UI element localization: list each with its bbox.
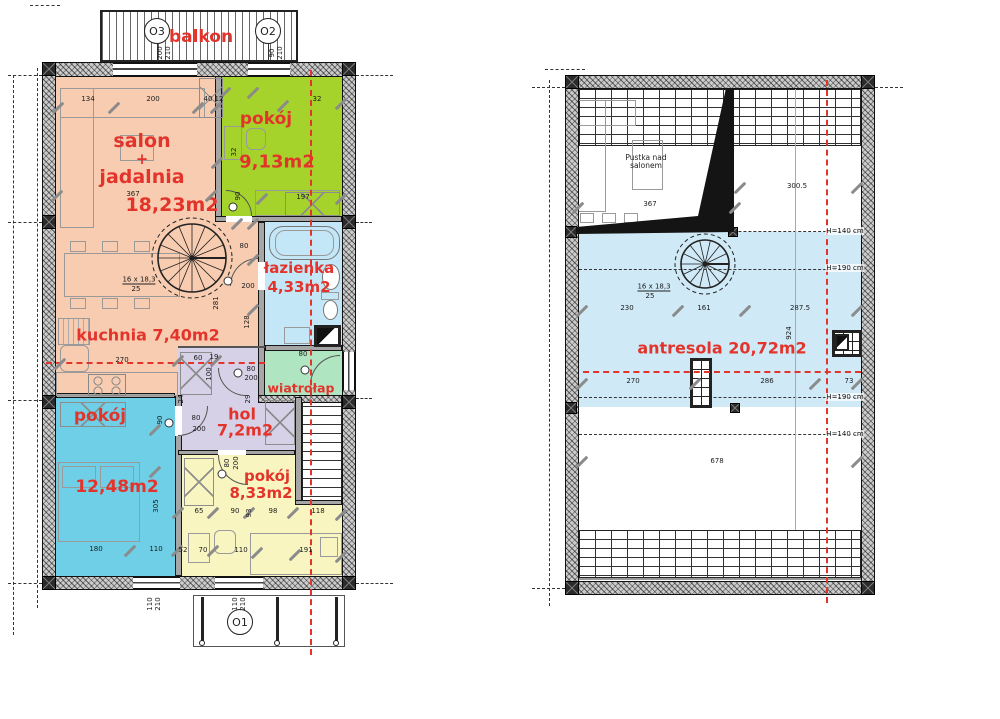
pokoj-gorny-label: pokój [240,111,292,129]
dim-label: 200 [146,95,159,103]
chair [70,298,86,309]
wall-node [565,402,577,414]
dim-label: 32 [230,148,238,157]
antresola-label: antresola 20,72m2 [637,341,806,358]
axis-line [532,588,565,589]
hol-area: 7,2m2 [217,423,273,440]
dim-label: 200 [232,456,240,469]
salon-label: salon + jadalnia [99,132,184,188]
dim-label: 180 [89,545,102,553]
dim-label: 100 [205,367,213,380]
dim-label: 93 [245,509,253,518]
office-chair [214,530,236,554]
toilet [323,300,338,320]
door-mark [224,277,233,286]
pokoj-lewy-area: 12,48m2 [75,479,158,497]
ventilation-shaft [314,325,341,347]
dim-label: 80 [192,414,201,422]
wall-corridor-holupper [178,346,265,348]
dim-label: 200 [192,425,205,433]
dim-label: 110 [149,545,162,553]
post-foot [274,640,280,646]
dim-label: 678 [710,457,723,465]
dim-label: 210 [276,46,284,59]
dim-label: 118 [311,507,324,515]
wardrobe [184,458,214,506]
door-mark [165,419,174,428]
wall-node [565,581,579,595]
wall-node [42,395,56,409]
salon-line1: salon [99,132,184,152]
dim-label: 161 [697,304,710,312]
dim-label: 197 [296,193,309,201]
dim-label: 270 [626,377,639,385]
balcony-window-O3 [113,62,197,77]
dim-label: 230 [620,304,633,312]
dim-label: 73 [845,377,854,385]
height-label: H=190 cm [825,393,864,401]
exterior-wall-bottom [565,581,875,595]
dim-label: 210 [239,597,247,610]
wiatrolap-label: wiatrołap [267,381,334,394]
window-mark-O3: O3 [144,18,170,44]
dim-label: 300.5 [787,182,807,190]
section-line-red [310,70,312,655]
wall-corridor-bath [258,222,265,397]
axis-line [356,75,393,76]
dim-label: 191 [299,546,312,554]
wall-node [342,576,356,590]
dim-label: 128 [243,315,251,328]
window-mark-O1: O1 [227,609,253,635]
height-label: H=190 cm [825,264,864,272]
wall-stairs-bottom [295,500,342,505]
south-window-2 [215,576,263,590]
dim-label: 90 [234,192,242,201]
dim-label: 134 [81,95,94,103]
dim-label: 110 [231,597,239,610]
terrace-post [276,597,279,641]
axis-line [37,68,38,608]
terrace [193,595,345,647]
height-line-190 [579,397,861,398]
height-line-140 [579,434,861,435]
dim-label: 25 [132,285,141,293]
chair [102,298,118,309]
dim-label: 12 [215,95,224,103]
chair [134,298,150,309]
dim-label: 98 [269,507,278,515]
entrance-opening [342,352,356,390]
axis-line [30,5,60,6]
wall-node [861,581,875,595]
lazienka-area: 4,33m2 [267,280,330,296]
axis-line [8,75,42,76]
dim-label: 200 [156,46,164,59]
wall-node [730,403,740,413]
dim-label: 367 [643,200,656,208]
balcony-label: balkon [169,29,233,47]
exterior-stairs [302,397,342,501]
sofa [60,88,94,228]
door-mark [234,369,243,378]
axis-line [8,583,42,584]
axis-line [13,75,14,635]
section-line-red [826,80,828,603]
exterior-wall-left [42,62,56,590]
dim-label: 110 [146,597,154,610]
axis-line [356,583,393,584]
washing-machine [284,327,310,344]
salon-line3: jadalnia [99,168,184,188]
wall-node [342,62,356,76]
spiral-staircase [673,232,737,296]
spiral-staircase [150,216,234,300]
wall-hol-stairs [295,397,302,505]
terrace-post [335,597,338,641]
wall-node [342,395,356,409]
dim-label: 90 [268,49,276,58]
wall-node [42,576,56,590]
axis-line [8,222,42,223]
axis-line [8,400,42,401]
dim-label: 80 [223,459,231,468]
dim-label: 19 [210,353,219,361]
dim-label: 24 [177,395,185,404]
bathtub-inner [275,230,334,256]
chair [134,241,150,252]
post-foot [333,640,339,646]
low-roof-zone-bottom [579,530,861,578]
balcony-window-O2 [248,62,290,77]
pokoj-dolny-label: pokój [244,469,290,485]
south-window-1 [133,576,180,590]
terrace-post [201,597,204,641]
door-mark [218,470,227,479]
window-mark-O2: O2 [255,18,281,44]
dim-label: 286 [760,377,773,385]
pillow [320,537,338,557]
height-label: H=140 cm [825,430,864,438]
wall-node [342,215,356,229]
exterior-wall-bottom [42,576,356,590]
dim-label: 210 [164,46,172,59]
dim-label: 70 [199,546,208,554]
dim-label: 16 x 18,3 [122,276,155,285]
chair [102,241,118,252]
dim-label: 29 [244,395,252,404]
dim-label: 80 [247,365,256,373]
axis-line [356,398,372,399]
axis-line [545,69,585,70]
dim-label: 16 x 18,3 [637,283,670,292]
dim-label: 60 [194,354,203,362]
dim-label: 305 [152,499,160,512]
door-mark [301,366,310,375]
inner-edge [579,578,861,580]
dim-label: 110 [234,546,247,554]
dim-label: 200 [241,282,254,290]
ventilation-shaft [835,334,849,351]
dim-label: 52 [179,546,188,554]
dim-label: 287.5 [790,304,810,312]
architectural-drawing: O3 O2 balkon [0,0,1000,719]
pokoj-lewy-label: pokój [74,408,126,426]
low-zone-bottom [579,407,861,530]
kuchnia-label: kuchnia 7,40m2 [76,328,219,345]
stove [88,374,126,396]
exterior-wall-top [42,62,356,77]
mezzanine-edge-wedge [576,86,738,236]
dim-label: 80 [240,242,249,250]
exterior-wall-right [861,75,875,595]
wall-node [42,62,56,76]
wall-node [42,215,56,229]
dim-label: 90 [156,416,164,425]
axis-line [356,222,372,223]
height-label: H=140 cm [825,227,864,235]
post-foot [199,640,205,646]
dim-label: 924 [785,326,793,339]
dim-label: 80 [299,350,308,358]
office-chair [246,128,266,150]
dim-label: 40 [204,95,213,103]
pokoj-gorny-area: 9,13m2 [239,154,315,173]
chair [70,241,86,252]
axis-line [532,87,565,88]
section-line-red [583,371,861,373]
dim-label: 65 [195,507,204,515]
dim-label: 281 [212,296,220,309]
dim-label: 32 [313,95,322,103]
wall-node [861,75,875,89]
axis-line [875,87,903,88]
lazienka-label: łazienka [264,261,335,277]
dim-label: 210 [154,597,162,610]
wardrobe [285,192,340,216]
dim-label: 25 [646,292,655,300]
door-mark [229,203,238,212]
dim-label: 270 [115,356,128,364]
section-line-red [46,362,265,364]
dim-label: 200 [244,374,257,382]
axis-line [549,80,550,606]
dim-label: 90 [231,507,240,515]
pokoj-dolny-area: 8,33m2 [229,486,292,502]
dim-label: 367 [126,190,139,198]
